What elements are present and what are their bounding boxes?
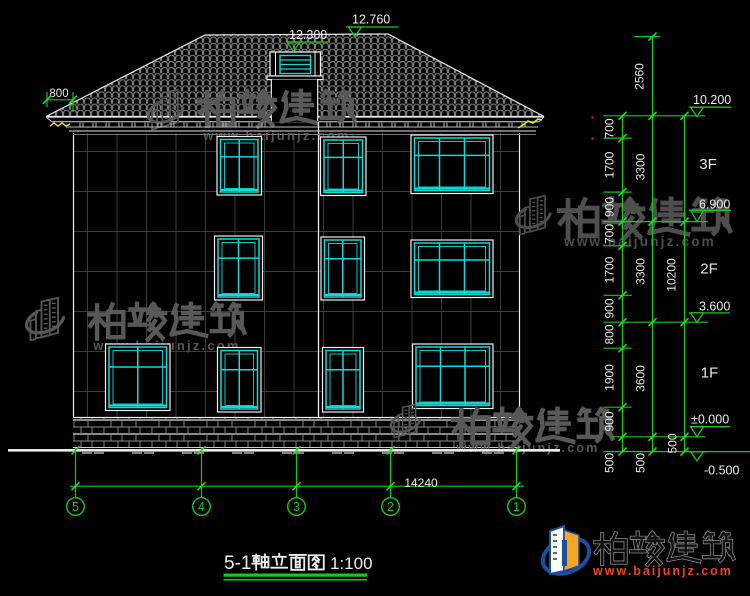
svg-text:500: 500: [666, 433, 680, 453]
svg-text:1:100: 1:100: [330, 554, 373, 573]
svg-text:5-1: 5-1: [224, 553, 251, 574]
svg-text:1900: 1900: [603, 364, 617, 391]
svg-text:1700: 1700: [603, 151, 617, 178]
svg-text:1F: 1F: [701, 365, 719, 382]
svg-text:www.baijunjz.com: www.baijunjz.com: [563, 234, 716, 249]
svg-text:www.baijunjz.com: www.baijunjz.com: [455, 441, 599, 455]
svg-text:3300: 3300: [634, 258, 648, 285]
svg-text:500: 500: [634, 453, 648, 473]
svg-text:1700: 1700: [603, 256, 617, 283]
svg-text:±0.000: ±0.000: [691, 413, 729, 427]
svg-text:www.baijunjz.com: www.baijunjz.com: [592, 564, 733, 578]
svg-text:2F: 2F: [700, 261, 718, 278]
svg-text:6.900: 6.900: [699, 198, 730, 212]
svg-text:900: 900: [603, 411, 617, 431]
svg-text:3600: 3600: [634, 365, 648, 392]
svg-text:-0.500: -0.500: [704, 464, 739, 478]
svg-text:800: 800: [603, 324, 617, 344]
svg-text:10.200: 10.200: [693, 93, 731, 107]
svg-text:500: 500: [603, 453, 617, 473]
svg-text:700: 700: [603, 118, 617, 138]
svg-text:5: 5: [72, 500, 79, 514]
svg-text:1: 1: [513, 500, 520, 514]
svg-text:4: 4: [198, 500, 205, 514]
svg-text:700: 700: [603, 224, 617, 244]
svg-text:900: 900: [603, 298, 617, 318]
svg-text:14240: 14240: [404, 476, 438, 490]
svg-text:3.600: 3.600: [699, 300, 730, 314]
svg-text:2: 2: [387, 500, 394, 514]
svg-text:800: 800: [49, 88, 68, 100]
svg-text:12.760: 12.760: [352, 13, 390, 27]
svg-text:12.300: 12.300: [289, 28, 327, 42]
svg-text:10200: 10200: [665, 258, 679, 292]
svg-text:900: 900: [603, 197, 617, 217]
svg-text:3F: 3F: [699, 156, 717, 173]
svg-text:2560: 2560: [633, 63, 647, 90]
svg-text:3: 3: [293, 500, 300, 514]
svg-text:3300: 3300: [634, 153, 648, 180]
